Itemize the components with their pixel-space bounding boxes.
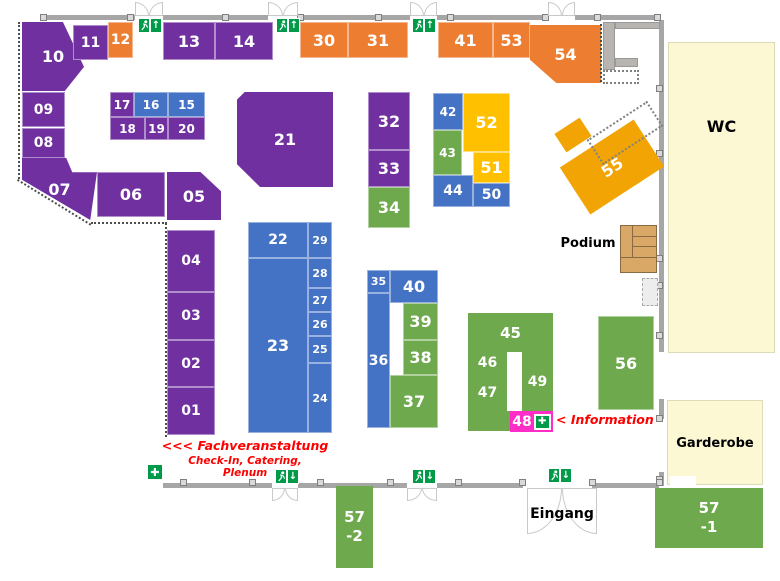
- booth-35: 35: [367, 270, 390, 293]
- wall-post: [127, 14, 134, 21]
- podium-block: [620, 257, 657, 273]
- exit-man-icon: [138, 18, 150, 33]
- booth-39: 39: [403, 303, 438, 340]
- booth-33: 33: [368, 150, 410, 187]
- room-wc-label: WC: [668, 117, 775, 136]
- booth-01: 01: [167, 387, 215, 435]
- booth-03: 03: [167, 292, 215, 340]
- wall-post: [519, 479, 526, 486]
- door-top-4: [548, 2, 575, 16]
- booth-56: 56: [598, 316, 654, 410]
- dotted-area-54: [603, 70, 639, 84]
- exit-arrow-down-icon: ↓: [560, 468, 572, 483]
- exit-man-icon: [412, 469, 424, 484]
- wall-post: [656, 332, 663, 339]
- booth-40: 40: [390, 270, 438, 303]
- booth-25: 25: [308, 336, 332, 363]
- exhibition-floor-plan: WC Garderobe Eingang 10 11 12 1: [0, 0, 780, 581]
- booth-57-1-line2: -1: [701, 518, 718, 538]
- exit-sign: ↓: [548, 468, 572, 483]
- booth-31: 31: [348, 22, 408, 58]
- booth-14: 14: [215, 22, 273, 60]
- booth-32: 32: [368, 92, 410, 150]
- wall-post: [656, 415, 663, 422]
- booth-16: 16: [134, 92, 168, 117]
- booth-15: 15: [168, 92, 205, 117]
- booth-43: 43: [433, 130, 462, 175]
- booth-41: 41: [438, 22, 493, 58]
- wall-top-3: [298, 15, 410, 20]
- exit-man-icon: [276, 18, 288, 33]
- booth-18: 18: [110, 117, 145, 140]
- booth-45: 45: [468, 313, 553, 352]
- booth-57-1-line1: 57: [699, 499, 720, 519]
- area-boundary-dotted: [165, 223, 167, 437]
- checkin-note: Check-In, Catering, Plenum: [165, 455, 325, 479]
- booth-13: 13: [163, 22, 215, 60]
- door-top-2: [268, 2, 298, 16]
- notch: [462, 152, 473, 175]
- wall-post: [656, 85, 663, 92]
- wall-post: [656, 479, 663, 486]
- exit-sign: ↑: [138, 18, 162, 33]
- dotted-line-54: [600, 24, 602, 82]
- wall-post: [387, 479, 394, 486]
- wall-top-2: [163, 15, 268, 20]
- booth-48-label: 48: [512, 414, 531, 430]
- wall-post: [654, 14, 661, 21]
- area-boundary-dotted: [18, 22, 20, 179]
- booth-49: 49: [522, 352, 553, 411]
- door-bottom-1: [272, 488, 298, 501]
- first-aid-cross-icon: ✚: [146, 463, 164, 481]
- booth-08: 08: [22, 128, 65, 158]
- exit-arrow-up-icon: ↑: [288, 18, 300, 33]
- booth-27: 27: [308, 288, 332, 312]
- wall-post: [447, 14, 454, 21]
- booth-53: 53: [493, 22, 530, 58]
- booth-09: 09: [22, 92, 65, 127]
- wall-post: [656, 255, 663, 262]
- booth-20: 20: [168, 117, 205, 140]
- booth-46: 46: [468, 352, 507, 373]
- door-top-1: [135, 2, 163, 16]
- podium-label: Podium: [558, 236, 618, 251]
- booth-54: 54: [530, 25, 601, 83]
- exit-sign: ↓: [412, 469, 436, 484]
- stair-structure: [615, 22, 660, 29]
- booth-51: 51: [473, 152, 510, 183]
- area-boundary-dotted: [91, 222, 167, 224]
- booth-11: 11: [73, 25, 108, 60]
- wall-bottom-4: [592, 483, 659, 488]
- door-bottom-2: [407, 488, 437, 501]
- room-wc: [668, 42, 775, 353]
- information-note: < Information: [556, 412, 656, 427]
- wall-post: [317, 479, 324, 486]
- booth-37: 37: [390, 375, 438, 428]
- door-top-3: [410, 2, 437, 16]
- booth-26: 26: [308, 312, 332, 336]
- wall-right-1: [659, 20, 664, 352]
- booth-24: 24: [308, 363, 332, 433]
- wall-post: [594, 14, 601, 21]
- exit-man-icon: [412, 18, 424, 33]
- exit-sign: ↑: [412, 18, 436, 33]
- booth-57-2-line2: -2: [346, 527, 363, 547]
- notch: [507, 352, 522, 411]
- booth-23: 23: [248, 258, 308, 433]
- booth-04: 04: [167, 230, 215, 292]
- equipment-box: [642, 278, 658, 306]
- booth-36: 36: [367, 293, 390, 428]
- wall-top-1: [40, 15, 135, 20]
- exit-man-icon: [548, 468, 560, 483]
- wall-post: [375, 14, 382, 21]
- wall-post: [589, 479, 596, 486]
- booth-34: 34: [368, 187, 410, 228]
- booth-42: 42: [433, 93, 463, 130]
- fachveranstaltung-note: <<< Fachveranstaltung: [155, 438, 335, 453]
- booth-05: 05: [167, 172, 221, 220]
- booth-55-ramp: [554, 118, 591, 153]
- booth-29: 29: [308, 222, 332, 258]
- wall-top-5: [575, 15, 659, 20]
- exit-arrow-down-icon: ↓: [424, 469, 436, 484]
- booth-19: 19: [145, 117, 168, 140]
- stair-structure: [615, 58, 638, 67]
- wall-post: [222, 14, 229, 21]
- booth-38: 38: [403, 340, 438, 375]
- wall-post: [180, 479, 187, 486]
- room-garderobe-label: Garderobe: [667, 436, 763, 451]
- exit-sign: ↑: [276, 18, 300, 33]
- booth-17: 17: [110, 92, 134, 117]
- booth-06: 06: [97, 172, 165, 217]
- booth-44: 44: [433, 175, 473, 207]
- booth-47: 47: [468, 373, 507, 413]
- booth-12: 12: [108, 22, 133, 58]
- first-aid-cross-icon: ✚: [534, 414, 551, 430]
- notch: [390, 303, 403, 375]
- booth-52: 52: [463, 93, 510, 152]
- wall-post: [40, 14, 47, 21]
- booth-57-2: 57 -2: [336, 486, 373, 568]
- wall-post: [249, 479, 256, 486]
- booth-48: 48 ✚: [510, 411, 553, 432]
- booth-02: 02: [167, 340, 215, 387]
- booth-28: 28: [308, 258, 332, 288]
- eingang-label: Eingang: [527, 506, 597, 522]
- exit-arrow-up-icon: ↑: [150, 18, 162, 33]
- wall-bottom-3: [437, 483, 523, 488]
- booth-57-2-line1: 57: [344, 508, 365, 528]
- booth-30: 30: [300, 22, 348, 58]
- stair-structure: [603, 22, 615, 70]
- booth-50: 50: [473, 183, 510, 207]
- wall-post: [455, 479, 462, 486]
- booth-21: 21: [237, 92, 333, 187]
- booth-57-1: 57 -1: [655, 488, 763, 548]
- garderobe-opening: [670, 476, 696, 485]
- exit-arrow-up-icon: ↑: [424, 18, 436, 33]
- booth-22: 22: [248, 222, 308, 258]
